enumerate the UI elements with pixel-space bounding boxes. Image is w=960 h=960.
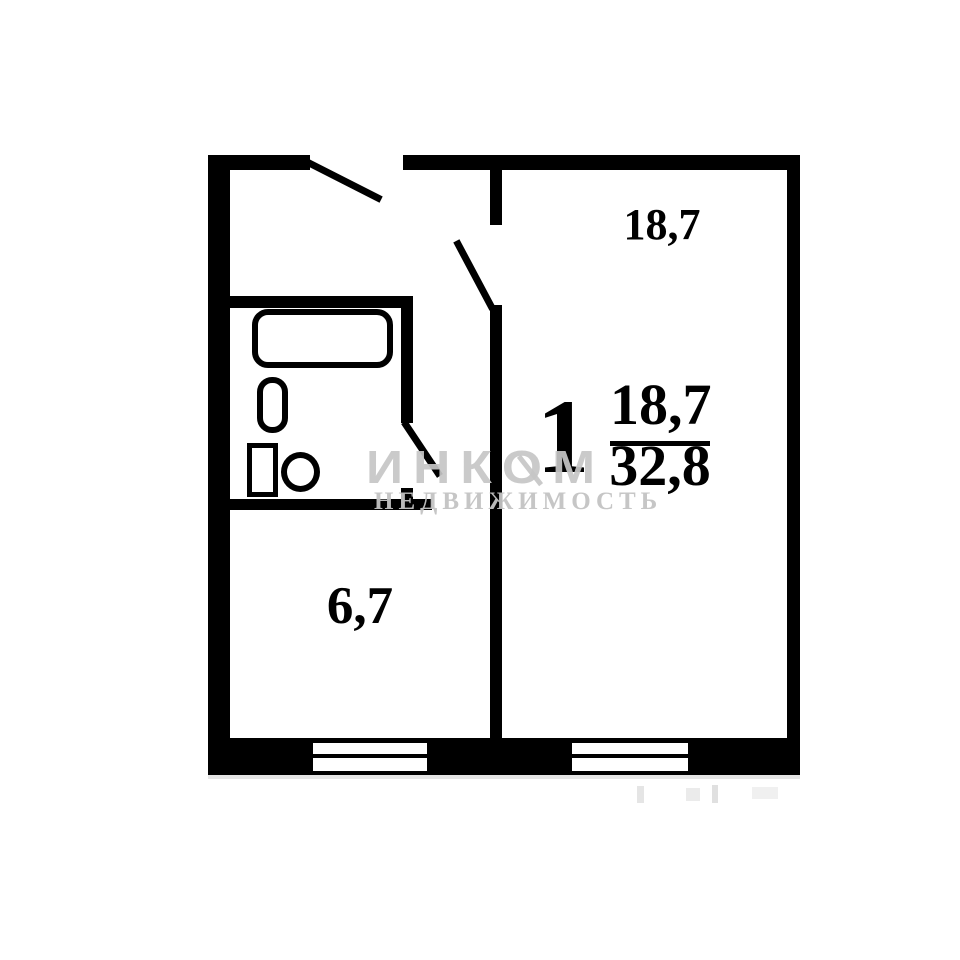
kitchen-area-label: 6,7 bbox=[310, 580, 410, 633]
living-area-numerator-label: 18,7 bbox=[610, 376, 710, 434]
entrance-door-swing-icon bbox=[311, 164, 378, 198]
toilet-bowl-icon bbox=[281, 452, 320, 492]
scan-artifact bbox=[752, 787, 778, 799]
watermark-brand: ИНКОМ bbox=[366, 444, 605, 490]
total-area-denominator-label: 32,8 bbox=[608, 437, 712, 495]
watermark-tagline: НЕДВИЖИМОСТЬ bbox=[374, 489, 662, 514]
scan-artifact bbox=[637, 786, 644, 803]
scan-artifact-shadow bbox=[208, 775, 800, 779]
living-room-area-label: 18,7 bbox=[612, 203, 712, 247]
floor-plan-canvas: 18,7 6,7 1 18,7 32,8 ИНКОМ НЕДВИЖИМОСТЬ bbox=[0, 0, 960, 960]
bathtub-icon bbox=[252, 309, 393, 368]
toilet-cistern-icon bbox=[247, 443, 278, 497]
scan-artifact bbox=[686, 788, 700, 801]
sink-icon bbox=[257, 377, 288, 433]
scan-artifact bbox=[712, 785, 718, 803]
living-room-door-swing-icon bbox=[458, 244, 491, 306]
